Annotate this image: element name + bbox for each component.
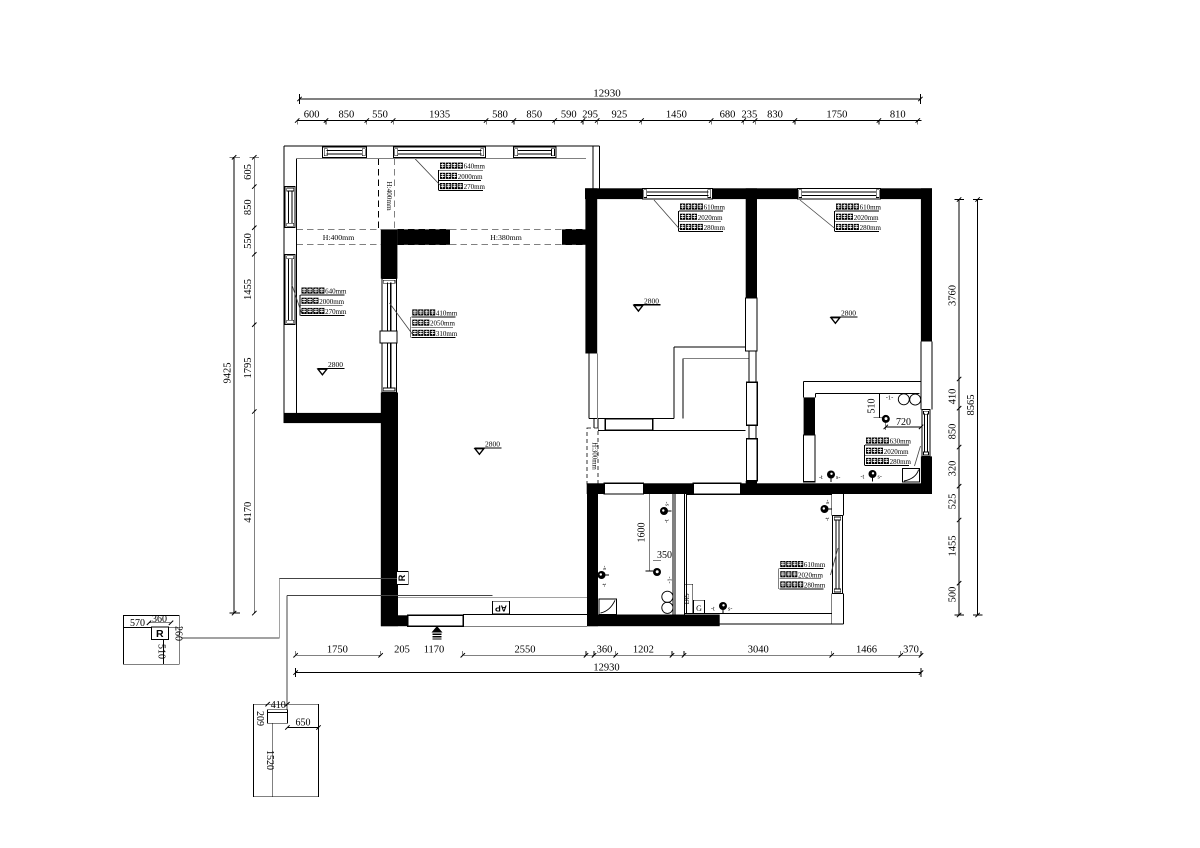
- svg-text:s-: s-: [728, 607, 732, 613]
- svg-text:2050mm: 2050mm: [430, 320, 455, 328]
- svg-text:2000mm: 2000mm: [319, 298, 344, 306]
- svg-text:500: 500: [948, 587, 959, 603]
- svg-text:2800: 2800: [328, 360, 343, 369]
- svg-text:G: G: [696, 604, 702, 613]
- svg-text:-t: -t: [861, 475, 865, 481]
- svg-text:s-: s-: [836, 475, 840, 481]
- svg-text:1935: 1935: [429, 110, 450, 121]
- svg-text:590: 590: [561, 110, 577, 121]
- svg-text:640mm: 640mm: [464, 163, 486, 171]
- svg-text:2020mm: 2020mm: [854, 214, 879, 222]
- svg-text:3040: 3040: [748, 645, 769, 656]
- svg-text:310mm: 310mm: [436, 330, 458, 338]
- svg-text:280mm: 280mm: [860, 224, 882, 232]
- svg-text:s-: s-: [602, 566, 608, 570]
- svg-text:850: 850: [243, 199, 254, 215]
- svg-text:-t: -t: [711, 607, 715, 613]
- svg-text:R: R: [397, 574, 407, 581]
- svg-text:550: 550: [243, 233, 254, 249]
- svg-text:850: 850: [948, 424, 959, 440]
- svg-text:12930: 12930: [593, 662, 619, 673]
- svg-text:s-: s-: [665, 502, 671, 506]
- svg-text:9425: 9425: [223, 363, 234, 384]
- svg-text:630mm: 630mm: [890, 438, 912, 446]
- svg-text:1600: 1600: [636, 523, 647, 543]
- svg-text:-t: -t: [819, 475, 823, 481]
- svg-text:410: 410: [271, 700, 286, 711]
- svg-text:925: 925: [612, 110, 628, 121]
- svg-text:205: 205: [394, 645, 410, 656]
- svg-text:525: 525: [948, 494, 959, 510]
- svg-text:1170: 1170: [424, 645, 445, 656]
- svg-text:-1-: -1-: [668, 577, 674, 584]
- svg-text:360: 360: [597, 645, 613, 656]
- svg-text:-t: -t: [665, 519, 671, 523]
- svg-text:370: 370: [903, 645, 919, 656]
- svg-text:510: 510: [156, 644, 167, 659]
- svg-text:720: 720: [896, 417, 911, 428]
- svg-text:235: 235: [742, 110, 758, 121]
- svg-text:580: 580: [492, 110, 508, 121]
- svg-text:1520: 1520: [264, 750, 275, 770]
- svg-text:4170: 4170: [243, 502, 254, 523]
- svg-text:1455: 1455: [243, 279, 254, 300]
- svg-text:270mm: 270mm: [464, 183, 486, 191]
- svg-text:270mm: 270mm: [325, 308, 347, 316]
- svg-text:AP: AP: [495, 603, 507, 613]
- svg-text:H:400mm: H:400mm: [323, 233, 355, 242]
- svg-text:3760: 3760: [948, 285, 959, 306]
- svg-text:R: R: [156, 628, 164, 640]
- svg-text:410: 410: [948, 389, 959, 405]
- svg-text:640mm: 640mm: [325, 288, 347, 296]
- svg-text:H:300mm: H:300mm: [591, 442, 598, 470]
- svg-text:280mm: 280mm: [804, 582, 826, 590]
- svg-text:8565: 8565: [966, 395, 977, 416]
- svg-text:610mm: 610mm: [804, 561, 826, 569]
- svg-text:1750: 1750: [327, 645, 348, 656]
- svg-text:650: 650: [296, 718, 311, 729]
- svg-text:-t: -t: [602, 583, 608, 587]
- svg-text:850: 850: [339, 110, 355, 121]
- svg-text:2550: 2550: [515, 645, 536, 656]
- svg-text:1466: 1466: [856, 645, 877, 656]
- svg-text:2020mm: 2020mm: [798, 571, 823, 579]
- svg-text:680: 680: [720, 110, 736, 121]
- svg-text:610mm: 610mm: [860, 204, 882, 212]
- svg-text:2020mm: 2020mm: [698, 214, 723, 222]
- svg-text:510: 510: [867, 399, 878, 414]
- svg-text:H:380mm: H:380mm: [490, 233, 522, 242]
- svg-text:s-: s-: [825, 500, 831, 504]
- svg-text:295: 295: [582, 110, 598, 121]
- svg-text:1795: 1795: [243, 358, 254, 379]
- svg-text:260: 260: [173, 626, 184, 641]
- svg-text:350: 350: [657, 550, 672, 561]
- svg-text:320: 320: [948, 461, 959, 477]
- svg-text:610mm: 610mm: [704, 204, 726, 212]
- svg-text:12930: 12930: [593, 88, 621, 100]
- svg-text:1450: 1450: [666, 110, 687, 121]
- svg-text:-1-: -1-: [886, 395, 894, 402]
- svg-text:2000mm: 2000mm: [458, 173, 483, 181]
- svg-text:550: 550: [372, 110, 388, 121]
- svg-text:2020mm: 2020mm: [884, 448, 909, 456]
- svg-text:2800: 2800: [485, 440, 500, 449]
- svg-text:s-: s-: [878, 475, 882, 481]
- svg-text:2800: 2800: [644, 296, 659, 305]
- svg-text:209: 209: [254, 711, 265, 726]
- svg-text:570: 570: [130, 618, 145, 629]
- svg-text:830: 830: [767, 110, 783, 121]
- svg-text:H:400mm: H:400mm: [385, 181, 393, 211]
- svg-text:605: 605: [243, 164, 254, 180]
- svg-text:850: 850: [526, 110, 542, 121]
- svg-text:280mm: 280mm: [890, 458, 912, 466]
- svg-text:1202: 1202: [633, 645, 654, 656]
- svg-text:-t: -t: [825, 517, 831, 521]
- svg-text:410mm: 410mm: [436, 310, 458, 318]
- svg-text:600: 600: [304, 110, 320, 121]
- svg-text:2800: 2800: [841, 309, 856, 318]
- svg-text:1455: 1455: [948, 536, 959, 557]
- svg-text:280mm: 280mm: [704, 224, 726, 232]
- svg-text:1750: 1750: [826, 110, 847, 121]
- svg-text:810: 810: [890, 110, 906, 121]
